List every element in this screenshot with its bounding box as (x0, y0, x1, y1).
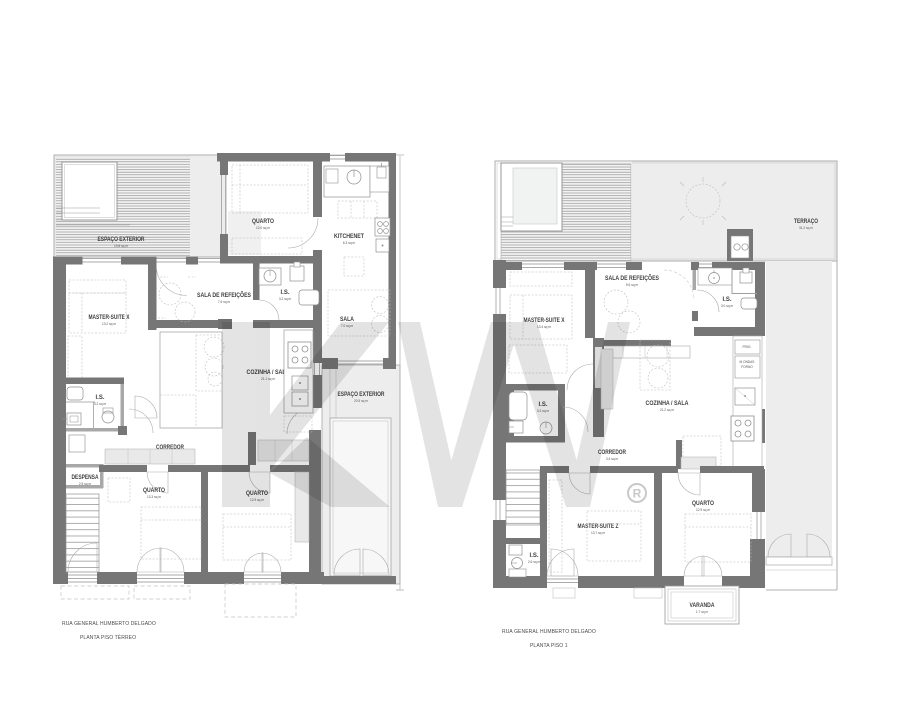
svg-text:2.6 sq m: 2.6 sq m (528, 560, 541, 564)
svg-text:FRIG.: FRIG. (742, 345, 751, 349)
svg-text:SALA: SALA (340, 316, 354, 323)
svg-text:21.2 sq m: 21.2 sq m (660, 408, 674, 412)
svg-text:MASTER-SUITE X: MASTER-SUITE X (89, 314, 131, 321)
svg-text:13.2 sq m: 13.2 sq m (102, 322, 116, 326)
svg-text:ESPAÇO EXTERIOR: ESPAÇO EXTERIOR (98, 236, 145, 243)
svg-text:QUARTO: QUARTO (252, 218, 274, 225)
svg-text:3.2 sq m: 3.2 sq m (94, 402, 107, 406)
svg-text:COZINHA / SALA: COZINHA / SALA (646, 400, 689, 407)
svg-text:3.2 sq m: 3.2 sq m (279, 297, 292, 301)
svg-text:6.3 sq m: 6.3 sq m (343, 241, 356, 245)
svg-text:13.3 sq m: 13.3 sq m (147, 495, 161, 499)
svg-text:I.S.: I.S. (281, 289, 290, 296)
svg-text:13.7 sq m: 13.7 sq m (591, 531, 605, 535)
svg-text:PLANTA PISO 1: PLANTA PISO 1 (530, 643, 568, 649)
svg-text:QUARTO: QUARTO (692, 500, 714, 507)
svg-text:TERRAÇO: TERRAÇO (794, 218, 818, 225)
svg-text:QUARTO: QUARTO (143, 487, 165, 494)
svg-text:FORNO: FORNO (741, 365, 753, 369)
svg-text:I.S.: I.S. (530, 552, 539, 559)
svg-text:R: R (633, 487, 642, 501)
svg-text:RUA GENERAL HUMBERTO DELGADO: RUA GENERAL HUMBERTO DELGADO (502, 629, 596, 635)
svg-text:I.S.: I.S. (723, 296, 732, 303)
svg-text:2.5 sq m: 2.5 sq m (79, 482, 92, 486)
svg-text:RUA GENERAL HUMBERTO DELGADO: RUA GENERAL HUMBERTO DELGADO (62, 621, 156, 627)
svg-text:3.0 sq m: 3.0 sq m (721, 304, 734, 308)
svg-text:I.S.: I.S. (96, 394, 105, 401)
svg-text:31.2 sq m: 31.2 sq m (799, 226, 813, 230)
svg-text:SALA DE REFEIÇÕES: SALA DE REFEIÇÕES (197, 290, 251, 299)
svg-text:7.6 sq m: 7.6 sq m (218, 300, 231, 304)
svg-text:PLANTA PISO TÉRREO: PLANTA PISO TÉRREO (80, 634, 136, 641)
svg-text:DESPENSA: DESPENSA (72, 474, 99, 481)
svg-text:13.4 sq m: 13.4 sq m (537, 325, 551, 329)
svg-text:M.ONDAS: M.ONDAS (740, 360, 755, 364)
svg-text:20.5 sq m: 20.5 sq m (354, 399, 368, 403)
svg-text:1.7 sq m: 1.7 sq m (696, 610, 709, 614)
svg-text:SALA DE REFEIÇÕES: SALA DE REFEIÇÕES (605, 273, 659, 282)
svg-text:19.8 sq m: 19.8 sq m (114, 244, 128, 248)
svg-text:12.0 sq m: 12.0 sq m (256, 226, 270, 230)
svg-text:ESPAÇO EXTERIOR: ESPAÇO EXTERIOR (338, 391, 385, 398)
svg-text:KITCHENET: KITCHENET (334, 233, 364, 240)
svg-text:3.4 sq m: 3.4 sq m (606, 457, 619, 461)
svg-text:9.6 sq m: 9.6 sq m (626, 283, 639, 287)
svg-text:12.9 sq m: 12.9 sq m (696, 508, 710, 512)
svg-text:VARANDA: VARANDA (690, 602, 715, 609)
